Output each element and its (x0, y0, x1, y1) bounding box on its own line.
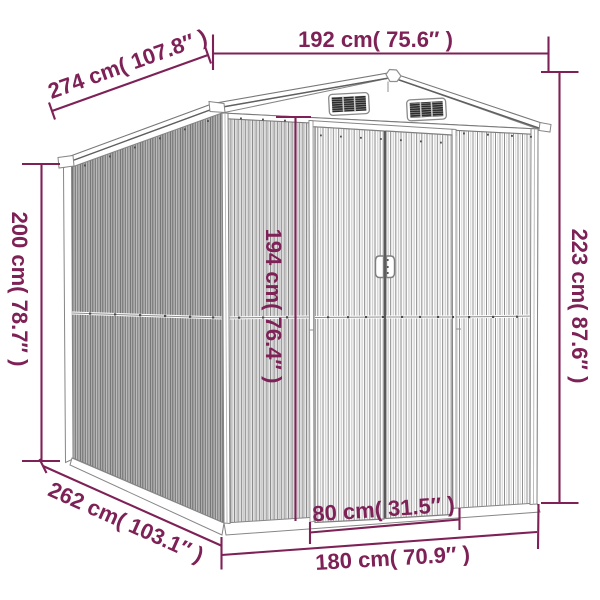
svg-text:194 cm( 76.4″ ): 194 cm( 76.4″ ) (261, 229, 286, 384)
svg-text:192 cm( 75.6″ ): 192 cm( 75.6″ ) (298, 27, 453, 52)
svg-text:223 cm( 87.6″ ): 223 cm( 87.6″ ) (567, 229, 592, 384)
svg-text:200 cm( 78.7″ ): 200 cm( 78.7″ ) (7, 212, 32, 367)
